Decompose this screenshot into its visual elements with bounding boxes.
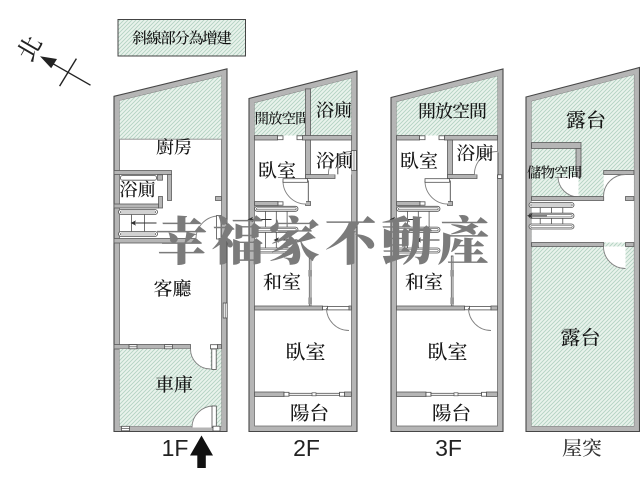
svg-text:3F: 3F bbox=[435, 435, 462, 461]
svg-text:2F: 2F bbox=[293, 435, 320, 461]
svg-text:1F: 1F bbox=[162, 435, 189, 461]
